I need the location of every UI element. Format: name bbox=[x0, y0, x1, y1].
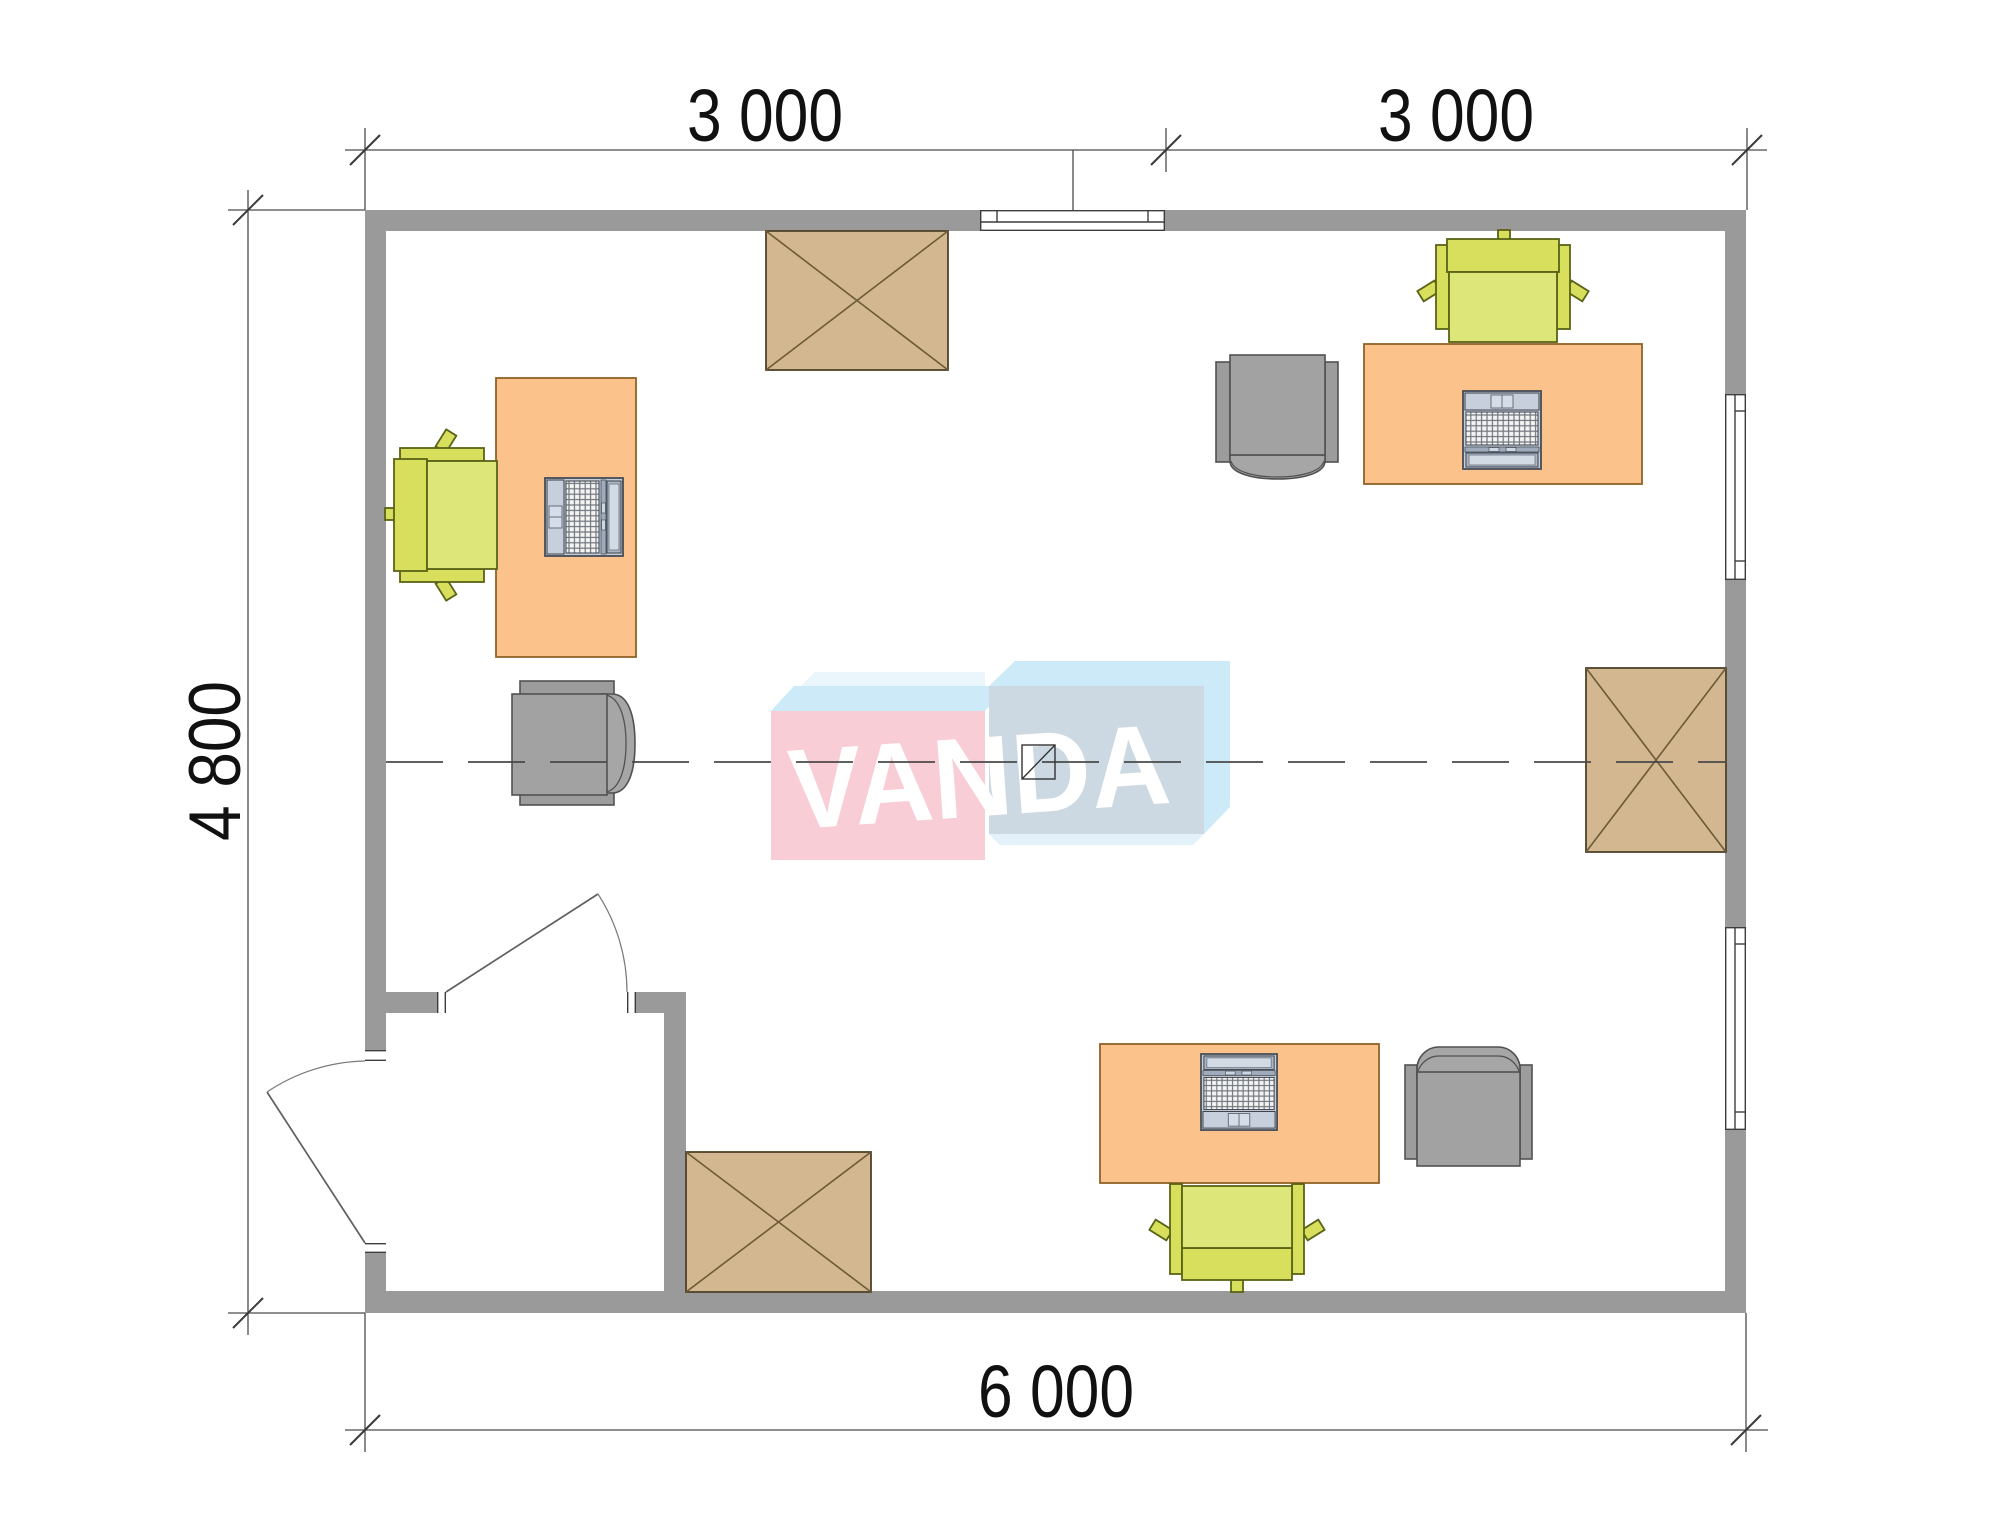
svg-text:4 800: 4 800 bbox=[175, 681, 256, 841]
svg-text:6 000: 6 000 bbox=[978, 1350, 1134, 1433]
svg-text:3 000: 3 000 bbox=[1378, 74, 1534, 157]
svg-text:3 000: 3 000 bbox=[687, 74, 843, 157]
svg-text:VANDA: VANDA bbox=[784, 700, 1174, 854]
